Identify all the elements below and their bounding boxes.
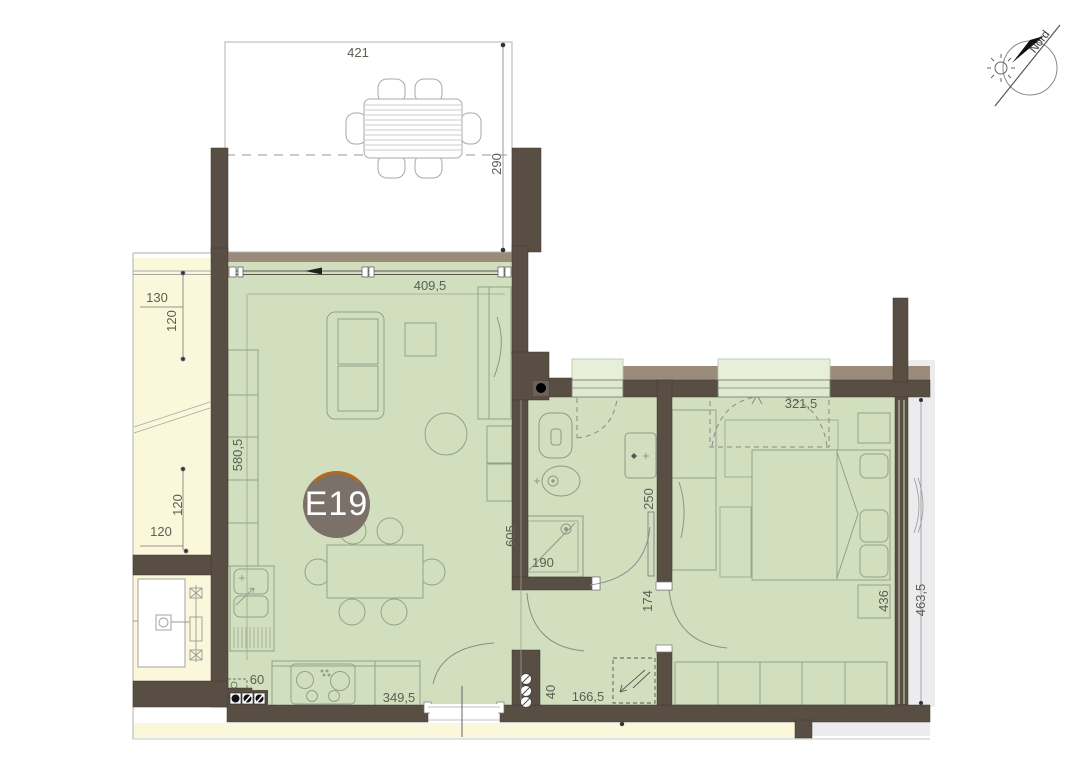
dim-hall-door-width: 174 — [641, 583, 655, 619]
dim-living-depth: 580,5 — [231, 431, 245, 479]
elevator-car — [138, 579, 185, 667]
dim-living-height: 605 — [504, 518, 518, 554]
dim-living-width: 409,5 — [403, 279, 457, 293]
bed — [752, 450, 890, 580]
unit-badge-label: E19 — [305, 485, 369, 524]
floor-plan: 421 290 409,5 580,5 130 120 120 120 605 … — [0, 0, 1076, 780]
dim-bath-width: 250 — [642, 481, 656, 517]
unit-badge: E19 — [303, 471, 370, 538]
dining-table — [327, 545, 423, 598]
dim-kitchen-offset: 60 — [242, 673, 272, 687]
dim-neighbor-depth-bottom: 120 — [171, 487, 185, 523]
dim-bedroom-width: 321,5 — [774, 397, 828, 411]
dim-facade-height: 463,5 — [914, 576, 928, 624]
dim-terrace-depth: 290 — [490, 146, 504, 182]
dim-bedroom-depth: 436 — [877, 583, 891, 619]
dim-terrace-width: 421 — [338, 46, 378, 60]
terrace-table — [364, 99, 462, 158]
dim-entry-offset: 40 — [544, 674, 558, 710]
floor-plan-drawing — [0, 0, 1076, 780]
dim-kitchen-run: 349,5 — [372, 691, 426, 705]
dim-entry-run: 166,5 — [561, 690, 615, 704]
sun-icon — [987, 54, 1015, 82]
dim-neighbor-depth-top: 120 — [165, 303, 179, 339]
dim-shower-width: 190 — [523, 556, 563, 570]
plumbing-stack-icon — [536, 383, 546, 393]
terrace-chair — [460, 113, 481, 144]
dim-neighbor-width-bottom: 120 — [141, 525, 181, 539]
valve-icons — [521, 674, 532, 708]
